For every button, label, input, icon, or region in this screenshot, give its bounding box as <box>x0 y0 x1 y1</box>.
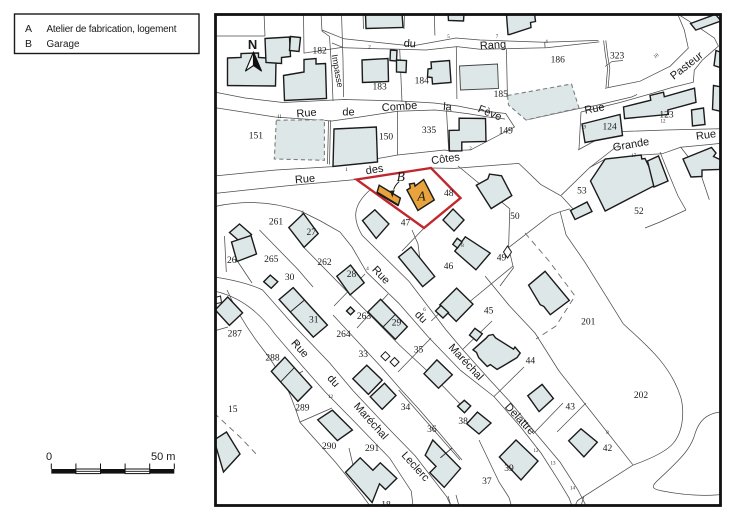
svg-text:291: 291 <box>365 444 380 454</box>
svg-text:B: B <box>397 169 405 184</box>
svg-text:53: 53 <box>577 187 587 197</box>
svg-text:Rue: Rue <box>369 264 392 287</box>
svg-text:201: 201 <box>581 318 596 328</box>
svg-text:N: N <box>248 37 257 52</box>
svg-text:263: 263 <box>357 312 372 322</box>
svg-text:264: 264 <box>336 330 351 340</box>
svg-text:14: 14 <box>570 487 576 492</box>
svg-text:Rue: Rue <box>584 101 606 116</box>
svg-text:26: 26 <box>227 256 237 266</box>
svg-text:29: 29 <box>392 319 402 329</box>
svg-text:13: 13 <box>551 462 557 467</box>
svg-text:124: 124 <box>602 122 617 132</box>
svg-text:289: 289 <box>295 404 310 414</box>
svg-text:6: 6 <box>423 308 426 313</box>
svg-text:46: 46 <box>444 262 454 272</box>
svg-text:de: de <box>342 107 354 119</box>
svg-text:Garage: Garage <box>47 39 80 50</box>
svg-text:15: 15 <box>228 405 238 415</box>
svg-text:11: 11 <box>277 115 282 120</box>
svg-text:4: 4 <box>366 267 369 272</box>
svg-text:290: 290 <box>322 442 337 452</box>
svg-text:42: 42 <box>603 444 613 454</box>
svg-text:Rue: Rue <box>294 173 315 187</box>
svg-text:17: 17 <box>631 154 637 159</box>
svg-text:Delattre: Delattre <box>502 401 537 437</box>
svg-text:du: du <box>412 309 429 326</box>
svg-text:49: 49 <box>497 254 507 264</box>
svg-text:12: 12 <box>328 395 334 400</box>
svg-text:Atelier de fabrication, logeme: Atelier de fabrication, logement <box>47 24 177 35</box>
svg-text:Rue: Rue <box>288 337 310 360</box>
svg-text:27: 27 <box>306 228 316 238</box>
svg-text:Rue: Rue <box>296 107 317 121</box>
svg-text:36: 36 <box>427 425 437 435</box>
svg-text:150: 150 <box>379 133 394 143</box>
svg-text:44: 44 <box>526 357 536 367</box>
svg-text:34: 34 <box>401 403 411 413</box>
svg-text:du: du <box>403 38 416 51</box>
svg-text:186: 186 <box>551 56 566 66</box>
svg-text:28: 28 <box>347 270 357 280</box>
svg-text:288: 288 <box>265 354 280 364</box>
svg-text:A: A <box>416 189 426 204</box>
svg-text:du: du <box>325 373 342 390</box>
svg-text:151: 151 <box>249 131 264 141</box>
svg-text:33: 33 <box>359 350 369 360</box>
svg-text:Rue: Rue <box>695 128 717 143</box>
svg-text:43: 43 <box>565 403 575 413</box>
svg-text:323: 323 <box>610 51 625 61</box>
svg-text:Combe: Combe <box>381 100 417 114</box>
svg-text:47: 47 <box>401 219 411 229</box>
svg-text:287: 287 <box>228 329 243 339</box>
svg-text:Grande: Grande <box>612 136 650 154</box>
svg-text:335: 335 <box>422 126 437 136</box>
svg-text:0: 0 <box>46 451 52 463</box>
svg-text:184: 184 <box>415 77 430 87</box>
svg-text:39: 39 <box>504 464 514 474</box>
svg-text:182: 182 <box>312 46 327 56</box>
svg-text:B: B <box>25 38 32 50</box>
svg-text:50: 50 <box>510 212 520 222</box>
svg-text:Rang: Rang <box>479 39 506 53</box>
svg-text:50 m: 50 m <box>151 451 175 463</box>
svg-text:52: 52 <box>634 207 644 217</box>
svg-text:Côtes: Côtes <box>430 151 461 167</box>
svg-text:183: 183 <box>372 83 387 93</box>
svg-text:A: A <box>25 23 32 35</box>
svg-text:8: 8 <box>606 431 609 436</box>
svg-text:185: 185 <box>494 90 509 100</box>
svg-text:2: 2 <box>368 46 371 51</box>
svg-text:38: 38 <box>458 417 468 427</box>
svg-text:149: 149 <box>499 127 514 137</box>
svg-text:45: 45 <box>484 307 494 317</box>
svg-text:12: 12 <box>661 120 667 125</box>
svg-text:35: 35 <box>414 346 424 356</box>
svg-text:265: 265 <box>264 255 279 265</box>
svg-text:48: 48 <box>444 189 454 199</box>
svg-text:202: 202 <box>634 391 649 401</box>
svg-text:30: 30 <box>285 273 295 283</box>
svg-text:262: 262 <box>317 258 332 268</box>
svg-text:261: 261 <box>269 217 284 227</box>
svg-text:37: 37 <box>482 477 492 487</box>
svg-text:Pasteur: Pasteur <box>668 49 706 82</box>
svg-text:12: 12 <box>534 449 540 454</box>
svg-text:19: 19 <box>581 126 587 131</box>
svg-text:10: 10 <box>653 53 660 60</box>
svg-text:31: 31 <box>309 316 319 326</box>
svg-text:1: 1 <box>345 168 348 173</box>
